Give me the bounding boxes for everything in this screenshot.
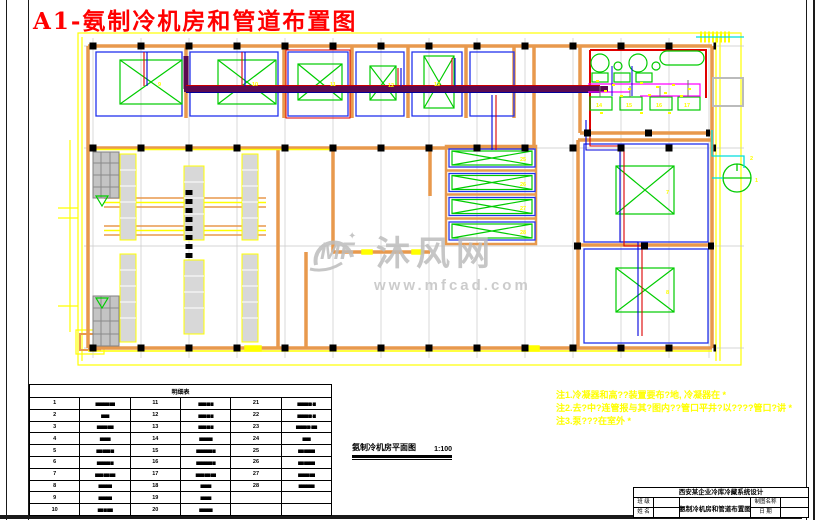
cooling-tower bbox=[723, 164, 751, 192]
part-name: ▆▆▆-▆-▆ bbox=[180, 398, 230, 410]
label-cold2: 8 bbox=[666, 290, 669, 296]
part-no bbox=[231, 492, 281, 504]
part-no: 24 bbox=[231, 433, 281, 445]
part-no: 26 bbox=[231, 456, 281, 468]
note-line-1: 注1.冷凝器和高??装置要布?地, 冷凝器在 * bbox=[556, 389, 792, 402]
part-no: 7 bbox=[30, 468, 80, 480]
part-name: ▆▆▆▆▆▆-▆ bbox=[180, 445, 230, 457]
parts-table: 明细表 1▆▆▆▆▆-▆▆11▆▆▆-▆-▆21▆▆▆▆(▆)-▆ 2▆▆▆12… bbox=[29, 384, 332, 516]
part-no: 19 bbox=[130, 492, 180, 504]
label-comp2: 15 bbox=[626, 103, 632, 109]
label-room4: 12 bbox=[388, 83, 394, 89]
part-name bbox=[281, 492, 331, 504]
part-no: 27 bbox=[231, 468, 281, 480]
label-comp4: 17 bbox=[684, 103, 690, 109]
part-name: ▆▆-▆-▆▆ bbox=[80, 504, 130, 516]
part-name: ▆▆▆-▆▆-▆▆ bbox=[180, 468, 230, 480]
plan-caption-name: 氨制冷机房平面图 bbox=[352, 442, 416, 453]
label-room1: 9 bbox=[158, 82, 161, 88]
part-no: 28 bbox=[231, 480, 281, 492]
field-chart-label: 制图名称 bbox=[751, 498, 781, 507]
part-no: 1 bbox=[30, 398, 80, 410]
part-name: ▆▆▆-▆▆-▆▆ bbox=[80, 468, 130, 480]
part-no: 21 bbox=[231, 398, 281, 410]
part-no: 18 bbox=[130, 480, 180, 492]
label-comp3: 16 bbox=[656, 103, 662, 109]
part-no: 13 bbox=[130, 421, 180, 433]
field-date-label: 日 期 bbox=[751, 507, 781, 517]
plan-caption: 氨制冷机房平面图 1:100 bbox=[352, 442, 452, 458]
part-name: ▆▆▆▆▆ bbox=[80, 480, 130, 492]
part-name: ▆▆▆▆-▆▆ bbox=[281, 468, 331, 480]
part-no: 14 bbox=[130, 433, 180, 445]
part-name: ▆▆▆▆(▆)-▆ bbox=[281, 409, 331, 421]
part-name: ▆▆-▆▆▆-▆ bbox=[80, 445, 130, 457]
part-name: ▆▆-▆▆▆▆ bbox=[281, 456, 331, 468]
title-block: 西安某企业冷库冷藏系统设计 班 级 姓 名 氨制冷机房和管道布置图 制图名称 日… bbox=[633, 487, 809, 518]
label-room3: 11 bbox=[330, 82, 336, 88]
part-no: 23 bbox=[231, 421, 281, 433]
part-name: ▆▆-▆▆▆▆ bbox=[281, 445, 331, 457]
branch-pipes bbox=[144, 52, 642, 336]
part-name: ▆▆▆▆▆ bbox=[180, 504, 230, 516]
part-no: 4 bbox=[30, 433, 80, 445]
part-name: ▆▆▆▆▆▆ bbox=[281, 480, 331, 492]
drawing-sheet: A1-氨制冷机房和管道布置图 bbox=[0, 0, 820, 520]
part-no: 6 bbox=[30, 456, 80, 468]
part-name: ▆▆▆ bbox=[80, 409, 130, 421]
part-no: 5 bbox=[30, 445, 80, 457]
label-evap2: 26 bbox=[520, 182, 526, 188]
part-no: 20 bbox=[130, 504, 180, 516]
drawing-notes: 注1.冷凝器和高??装置要布?地, 冷凝器在 * 注2.去?中?连管报与其?图内… bbox=[556, 389, 792, 428]
part-name: ▆▆▆▆▆ bbox=[80, 492, 130, 504]
part-name: ▆▆▆▆ bbox=[180, 492, 230, 504]
part-no: 15 bbox=[130, 445, 180, 457]
field-name-value bbox=[654, 507, 680, 517]
label-valve: 2 bbox=[750, 156, 753, 162]
part-name: ▆▆▆▆-▆▆ bbox=[80, 421, 130, 433]
field-name-label: 姓 名 bbox=[634, 507, 654, 517]
field-class-value bbox=[654, 498, 680, 507]
label-evap1: 25 bbox=[520, 157, 526, 163]
label-tower: 1 bbox=[755, 178, 758, 184]
part-no: 11 bbox=[130, 398, 180, 410]
part-name: ▆▆▆▆(▆)-▆▆ bbox=[281, 421, 331, 433]
part-no: 10 bbox=[30, 504, 80, 516]
label-cold1: 7 bbox=[666, 190, 669, 196]
label-evap3: 27 bbox=[520, 206, 526, 212]
part-no: 22 bbox=[231, 409, 281, 421]
part-no: 2 bbox=[30, 409, 80, 421]
label-evap4: 28 bbox=[520, 230, 526, 236]
part-no: 17 bbox=[130, 468, 180, 480]
title-block-project: 西安某企业冷库冷藏系统设计 bbox=[634, 488, 808, 498]
part-name: ▆▆▆▆ bbox=[180, 480, 230, 492]
part-name: ▆▆▆▆(▆)-▆ bbox=[281, 398, 331, 410]
part-name: ▆▆▆-▆-▆ bbox=[180, 421, 230, 433]
part-no bbox=[231, 504, 281, 516]
note-line-2: 注2.去?中?连管报与其?图内??管口平井?以????管口?讲 * bbox=[556, 402, 792, 415]
field-date-value bbox=[781, 507, 808, 517]
plan-caption-scale: 1:100 bbox=[434, 446, 452, 453]
part-name: ▆▆▆▆ bbox=[80, 433, 130, 445]
title-block-drawing-name: 氨制冷机房和管道布置图 bbox=[680, 498, 751, 517]
part-no: 3 bbox=[30, 421, 80, 433]
label-comp1: 14 bbox=[596, 103, 603, 109]
part-name: ▆▆▆▆▆-▆▆ bbox=[80, 398, 130, 410]
part-name: ▆▆▆▆▆▆-▆ bbox=[180, 456, 230, 468]
label-room5: 13 bbox=[434, 82, 440, 88]
part-name bbox=[281, 504, 331, 516]
label-room2: 10 bbox=[252, 82, 258, 88]
note-line-3: 注3.泵???在室外 * bbox=[556, 415, 792, 428]
parts-table-title: 明细表 bbox=[30, 385, 332, 398]
field-chart-value bbox=[781, 498, 808, 507]
part-no: 12 bbox=[130, 409, 180, 421]
part-name: ▆▆▆▆▆ bbox=[180, 433, 230, 445]
part-no: 8 bbox=[30, 480, 80, 492]
part-name: ▆▆▆ bbox=[281, 433, 331, 445]
part-no: 16 bbox=[130, 456, 180, 468]
part-no: 9 bbox=[30, 492, 80, 504]
part-no: 25 bbox=[231, 445, 281, 457]
part-name: ▆▆▆▆▆-▆ bbox=[80, 456, 130, 468]
part-name: ▆▆▆-▆-▆ bbox=[180, 409, 230, 421]
field-class-label: 班 级 bbox=[634, 498, 654, 507]
